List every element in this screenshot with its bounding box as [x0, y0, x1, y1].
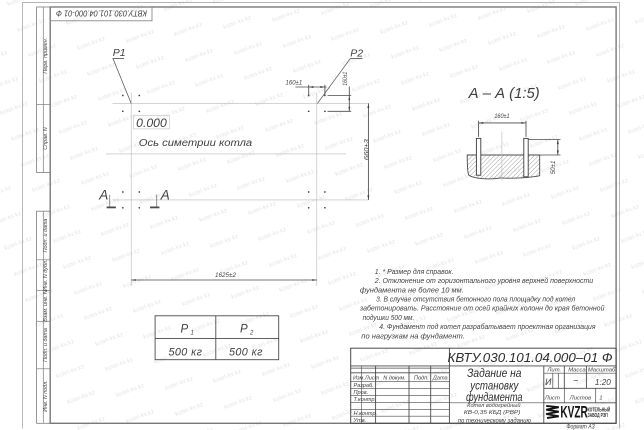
svg-text:Утв.: Утв. [353, 418, 367, 424]
svg-text:установку: установку [469, 380, 519, 392]
svg-text:Масса: Масса [568, 368, 586, 374]
svg-text:2. Отклонение от горизонтал: 2. Отклонение от горизонтального уровня … [374, 276, 594, 285]
svg-text:P2: P2 [350, 48, 363, 60]
svg-text:фундамента не более 10 мм.: фундамента не более 10 мм. [360, 285, 464, 294]
svg-text:Лит.: Лит. [546, 368, 561, 374]
svg-text:КВТУ.030.101.04.000-01 Ф: КВТУ.030.101.04.000-01 Ф [56, 9, 147, 18]
svg-text:по техническому заданию: по техническому заданию [458, 418, 532, 425]
svg-text:Ось симетрии котла: Ось симетрии котла [139, 138, 253, 149]
svg-text:КВ-0,35 КБД (РВР): КВ-0,35 КБД (РВР) [464, 410, 521, 416]
svg-text:по нагрузкам на фундамент.: по нагрузкам на фундамент. [361, 331, 465, 340]
svg-text:1:20: 1:20 [595, 378, 611, 387]
svg-text:Перв. примен.: Перв. примен. [43, 38, 49, 74]
svg-text:А – А (1:5): А – А (1:5) [468, 86, 540, 102]
svg-text:Подп. и дата: Подп. и дата [43, 219, 49, 253]
svg-text:Разраб.: Разраб. [354, 383, 374, 389]
svg-text:Котел водогрейный: Котел водогрейный [467, 402, 521, 409]
svg-text:0.000: 0.000 [136, 116, 167, 130]
svg-text:1. * Размер для справок.: 1. * Размер для справок. [375, 267, 454, 276]
svg-text:подушки 500 мм.: подушки 500 мм. [363, 313, 415, 322]
svg-text:Подп. и дата: Подп. и дата [43, 328, 49, 362]
svg-text:500 кг: 500 кг [229, 346, 263, 358]
svg-text:Инв. N подл.: Инв. N подл. [43, 380, 49, 412]
svg-text:ЗАВОД РЭП: ЗАВОД РЭП [588, 413, 609, 420]
svg-text:А: А [160, 187, 170, 202]
svg-text:КВТУ.030.101.04.000–01 Ф: КВТУ.030.101.04.000–01 Ф [448, 350, 613, 365]
svg-text:160±1: 160±1 [286, 79, 303, 86]
svg-text:А: А [98, 187, 108, 202]
svg-text:фундамента: фундамента [466, 392, 523, 404]
svg-text:500 кг: 500 кг [169, 346, 203, 358]
svg-text:660±3: 660±3 [364, 139, 371, 161]
svg-text:Дата: Дата [432, 376, 448, 382]
svg-text:Масштаб: Масштаб [588, 368, 616, 374]
svg-text:P: P [240, 324, 248, 336]
svg-text:2: 2 [249, 331, 254, 337]
svg-text:Изм.Лист: Изм.Лист [353, 376, 380, 382]
svg-text:Подп.: Подп. [414, 376, 429, 382]
svg-text:P: P [181, 324, 189, 336]
svg-text:Справ. N: Справ. N [43, 127, 49, 150]
svg-text:160±1: 160±1 [494, 113, 509, 120]
svg-text:Формат А3: Формат А3 [566, 423, 595, 430]
svg-text:KVZR: KVZR [560, 402, 587, 421]
svg-text:50±1: 50±1 [550, 161, 557, 175]
svg-text:1: 1 [191, 331, 194, 337]
svg-text:И: И [545, 377, 552, 387]
svg-text:3. В случае отсутствия бет: 3. В случае отсутствия бетонного пола пл… [376, 295, 576, 304]
svg-text:Взам. инв. N: Взам. инв. N [43, 290, 49, 322]
svg-text:–: – [573, 376, 579, 385]
svg-text:забетонировать. Расстояние о: забетонировать. Расстояние от осей крайн… [359, 304, 605, 313]
svg-text:1: 1 [599, 396, 602, 402]
svg-text:Пров.: Пров. [354, 390, 369, 396]
svg-text:4. Фундамент под котел раз: 4. Фундамент под котел разрабатывает про… [379, 322, 595, 331]
svg-text:Т.контр.: Т.контр. [354, 397, 377, 403]
svg-text:1625±2: 1625±2 [215, 272, 237, 279]
svg-text:N докум.: N докум. [383, 376, 406, 382]
svg-text:Задание на: Задание на [467, 368, 521, 380]
svg-text:160±1: 160±1 [342, 72, 349, 86]
svg-text:Инв. N дубл.: Инв. N дубл. [43, 260, 49, 291]
svg-text:Н.контр.: Н.контр. [354, 411, 378, 417]
svg-text:Лист: Лист [544, 396, 560, 402]
svg-text:P1: P1 [113, 47, 126, 59]
